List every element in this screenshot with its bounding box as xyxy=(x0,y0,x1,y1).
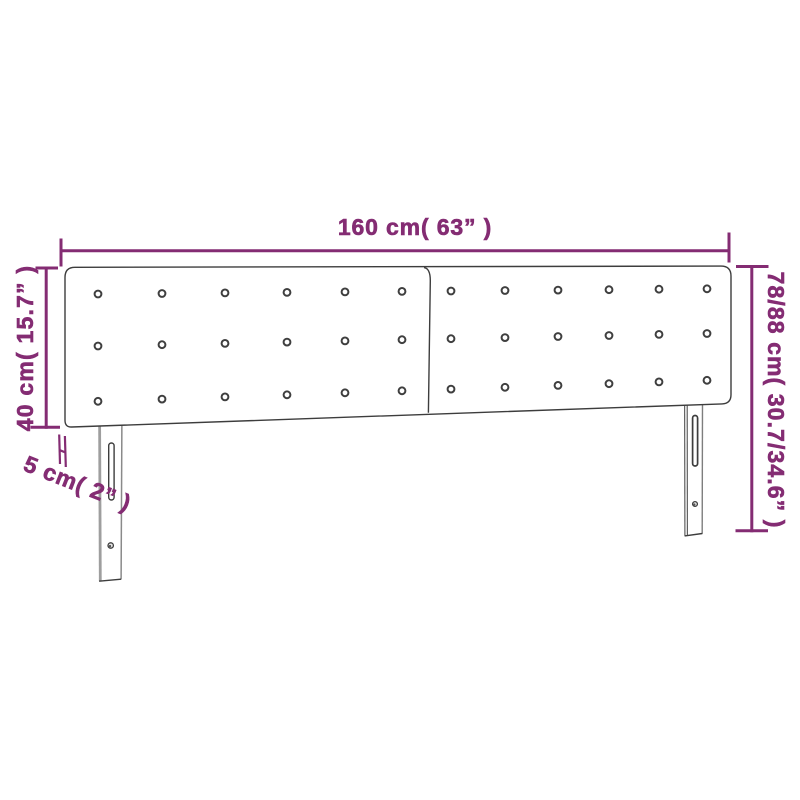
svg-text:40 cm( 15.7” ): 40 cm( 15.7” ) xyxy=(12,265,38,431)
svg-text:78/88 cm( 30.7/34.6” ): 78/88 cm( 30.7/34.6” ) xyxy=(763,272,789,529)
svg-text:160 cm( 63” ): 160 cm( 63” ) xyxy=(338,214,492,240)
